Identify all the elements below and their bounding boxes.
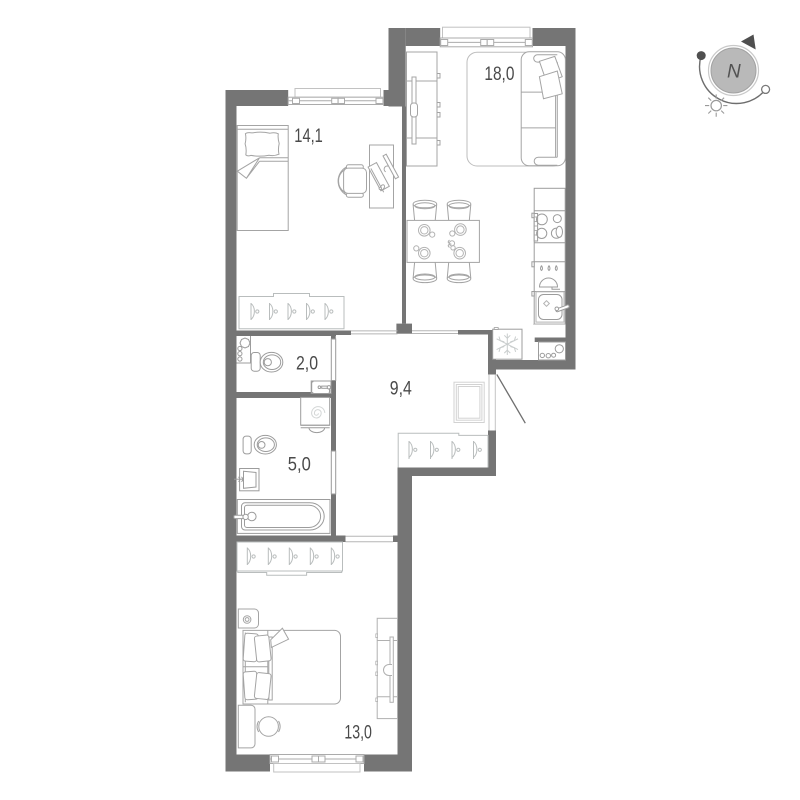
svg-text:13,0: 13,0 xyxy=(344,722,372,744)
svg-text:18,0: 18,0 xyxy=(484,63,514,85)
svg-text:14,1: 14,1 xyxy=(294,125,323,147)
svg-text:5,0: 5,0 xyxy=(288,453,311,475)
svg-text:N: N xyxy=(727,61,741,82)
svg-text:9,4: 9,4 xyxy=(390,378,412,400)
svg-text:2,0: 2,0 xyxy=(296,353,318,375)
